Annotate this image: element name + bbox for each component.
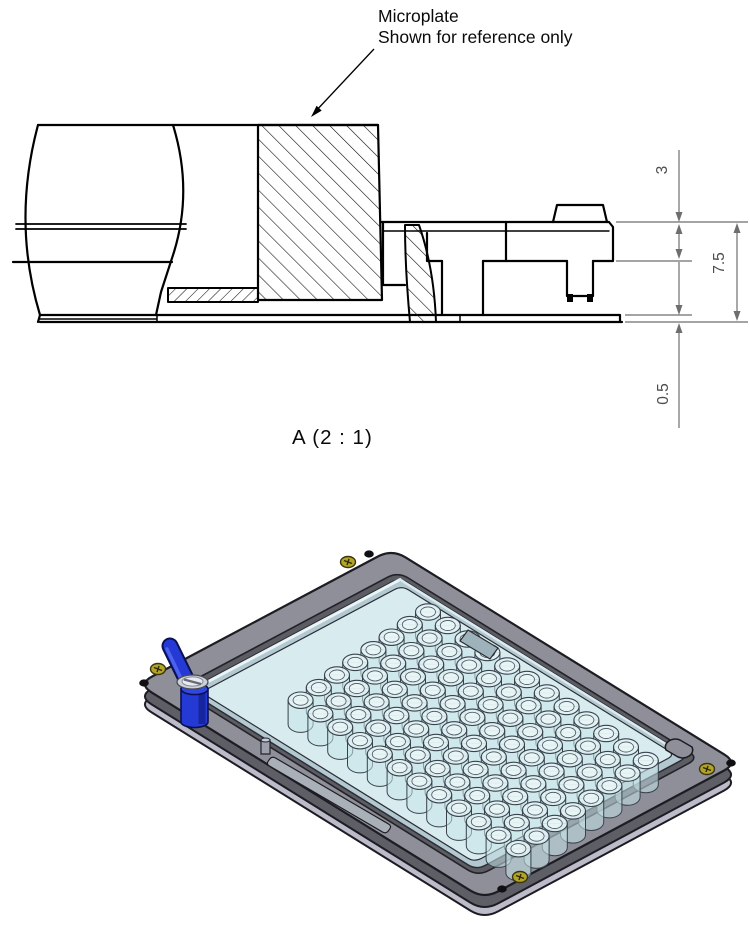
well-opening: [452, 803, 467, 813]
well-opening: [462, 660, 477, 670]
adapter-wall-section: [258, 125, 382, 300]
well-opening: [348, 657, 363, 667]
well-opening: [410, 750, 425, 760]
corner-screw: [341, 557, 356, 568]
well-opening: [486, 752, 501, 762]
well-opening: [620, 768, 635, 778]
well-opening: [333, 722, 348, 732]
dimension-overall-height: 7.5: [711, 252, 728, 274]
microplate-callout: Microplate Shown for reference only: [311, 6, 573, 117]
corner-hole: [139, 679, 149, 686]
callout-leader-line: [314, 49, 374, 113]
microplate-inner-wall-curve: [156, 125, 183, 315]
corner-screw: [151, 664, 166, 675]
well-opening: [523, 727, 538, 737]
clamp-wedge-section: [405, 225, 436, 322]
well-opening: [528, 805, 543, 815]
well-opening: [526, 779, 541, 789]
callout-leader-arrowhead: [311, 106, 322, 117]
well-opening: [421, 607, 436, 617]
well-opening: [600, 755, 615, 765]
well-opening: [491, 830, 506, 840]
well-opening: [529, 831, 544, 841]
well-opening: [391, 737, 406, 747]
well-opening: [544, 766, 559, 776]
well-opening: [387, 684, 402, 694]
well-opening: [402, 620, 417, 630]
arm-peg: [567, 261, 593, 296]
well-opening: [490, 804, 505, 814]
well-opening: [392, 763, 407, 773]
well-opening: [506, 765, 521, 775]
well-opening: [468, 764, 483, 774]
well-opening: [440, 620, 455, 630]
well-opening: [463, 686, 478, 696]
well-opening: [547, 818, 562, 828]
well-opening: [524, 753, 539, 763]
well-opening: [483, 700, 498, 710]
well-opening: [369, 697, 384, 707]
well-opening: [386, 658, 401, 668]
well-opening: [424, 659, 439, 669]
corner-hole: [364, 550, 374, 557]
well-opening: [447, 725, 462, 735]
pocket-floor-lip-section: [168, 288, 258, 302]
corner-hole: [726, 759, 736, 766]
arm-down-block: [442, 261, 483, 315]
well-opening: [467, 738, 482, 748]
well-opening: [349, 683, 364, 693]
well-opening: [448, 751, 463, 761]
well-opening: [351, 710, 366, 720]
well-opening: [432, 790, 447, 800]
well-opening: [389, 710, 404, 720]
well-opening: [561, 728, 576, 738]
well-opening: [366, 645, 381, 655]
well-opening: [331, 696, 346, 706]
well-opening: [409, 724, 424, 734]
arm-top-boss: [553, 205, 607, 222]
well-opening: [425, 685, 440, 695]
well-opening: [384, 632, 399, 642]
well-opening: [427, 711, 442, 721]
well-opening: [465, 712, 480, 722]
arm-bottom-edges: [427, 233, 567, 261]
adapter-hatched-section: [168, 125, 436, 322]
well-opening: [509, 818, 524, 828]
technical-drawing: 3 7.5 0.5 Microplate Shown for reference…: [0, 0, 750, 926]
well-opening: [429, 737, 444, 747]
well-opening: [541, 714, 556, 724]
callout-line2: Shown for reference only: [378, 27, 573, 47]
corner-hole: [497, 885, 507, 892]
well-opening: [584, 793, 599, 803]
well-opening: [511, 844, 526, 854]
well-opening: [372, 749, 387, 759]
callout-line1: Microplate: [378, 6, 459, 26]
corner-screw: [700, 764, 715, 775]
corner-screw: [513, 872, 528, 883]
view-label: A (2 : 1): [292, 426, 373, 449]
dimension-bottom-lip: 0.5: [655, 383, 672, 405]
well-opening: [485, 726, 500, 736]
well-opening: [564, 780, 579, 790]
drawing-canvas: 3 7.5 0.5 Microplate Shown for reference…: [0, 0, 750, 926]
detail-section-view: 3 7.5 0.5 Microplate Shown for reference…: [13, 6, 748, 449]
well-opening: [444, 673, 459, 683]
well-opening: [559, 701, 574, 711]
well-opening: [638, 755, 653, 765]
well-opening: [488, 778, 503, 788]
well-opening: [470, 791, 485, 801]
well-opening: [404, 646, 419, 656]
well-opening: [521, 701, 536, 711]
dimension-flange-height: 3: [654, 166, 671, 175]
well-opening: [562, 754, 577, 764]
well-opening: [539, 688, 554, 698]
latch-pin-top: [261, 738, 270, 742]
well-opening: [412, 776, 427, 786]
well-opening: [582, 767, 597, 777]
well-opening: [442, 647, 457, 657]
well-opening: [546, 792, 561, 802]
well-opening: [293, 695, 308, 705]
well-opening: [450, 777, 465, 787]
dimension-annotations: 3 7.5 0.5: [616, 150, 748, 428]
isometric-assembly-view: [139, 550, 736, 915]
extension-lines: [616, 222, 748, 322]
well-opening: [371, 723, 386, 733]
well-opening: [407, 698, 422, 708]
well-opening: [471, 817, 486, 827]
well-opening: [581, 741, 596, 751]
well-opening: [430, 764, 445, 774]
well-opening: [313, 709, 328, 719]
well-opening: [482, 674, 497, 684]
well-opening: [619, 742, 634, 752]
well-opening: [602, 781, 617, 791]
well-opening: [330, 670, 345, 680]
well-opening: [500, 661, 515, 671]
well-opening: [311, 683, 326, 693]
well-opening: [599, 728, 614, 738]
microplate-shoulder-lines: [16, 224, 186, 229]
well-opening: [501, 687, 516, 697]
well-opening: [579, 715, 594, 725]
well-opening: [368, 671, 383, 681]
well-opening: [353, 736, 368, 746]
well-opening: [566, 806, 581, 816]
well-opening: [406, 672, 421, 682]
well-opening: [505, 739, 520, 749]
well-opening: [445, 699, 460, 709]
well-opening: [422, 633, 437, 643]
well-opening: [508, 791, 523, 801]
well-opening: [503, 713, 518, 723]
well-opening: [543, 740, 558, 750]
well-opening: [520, 674, 535, 684]
